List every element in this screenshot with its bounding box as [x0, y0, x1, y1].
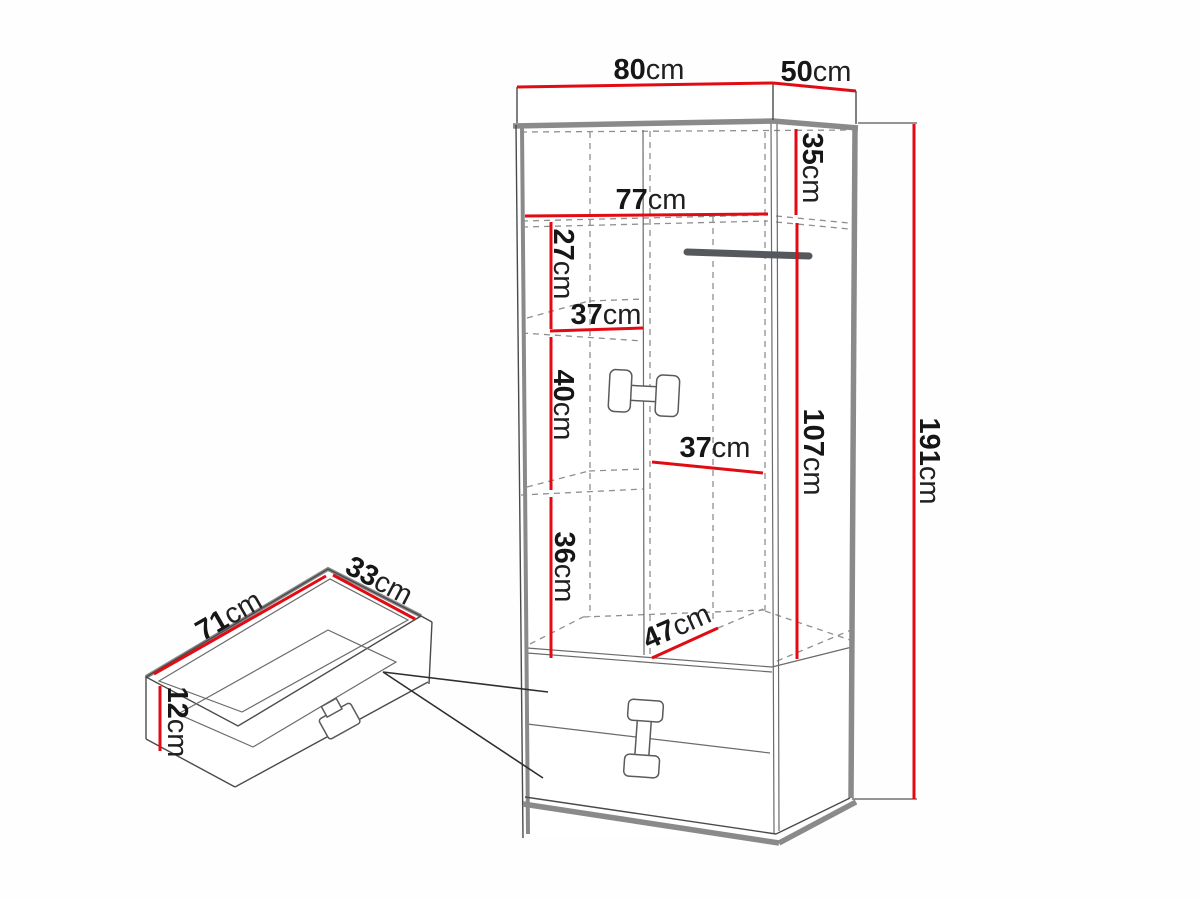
label-top-section-height: 35cm [796, 133, 828, 204]
diagram-canvas: 80cm 50cm 35cm 77cm 27cm 37cm 40cm 37cm … [0, 0, 1200, 899]
label-middle-gap-height: 40cm [547, 370, 579, 441]
dimension-diagram: 80cm 50cm 35cm 77cm 27cm 37cm 40cm 37cm … [0, 0, 1200, 899]
label-lower-gap-height: 36cm [548, 532, 580, 603]
label-hanging-zone-width: 37cm [680, 432, 751, 464]
total-height-dimension [852, 123, 917, 799]
hanging-rail [687, 252, 809, 256]
label-total-height: 191cm [913, 417, 945, 504]
label-interior-width: 77cm [616, 184, 687, 216]
label-upper-shelf-width: 37cm [571, 299, 642, 331]
label-upper-gap-height: 27cm [547, 229, 579, 300]
label-top-width: 80cm [614, 54, 685, 86]
label-top-depth: 50cm [781, 56, 852, 88]
label-drawer-height: 12cm [161, 687, 193, 758]
wardrobe-top-face [517, 83, 856, 124]
label-hanging-zone-height: 107cm [797, 408, 829, 495]
